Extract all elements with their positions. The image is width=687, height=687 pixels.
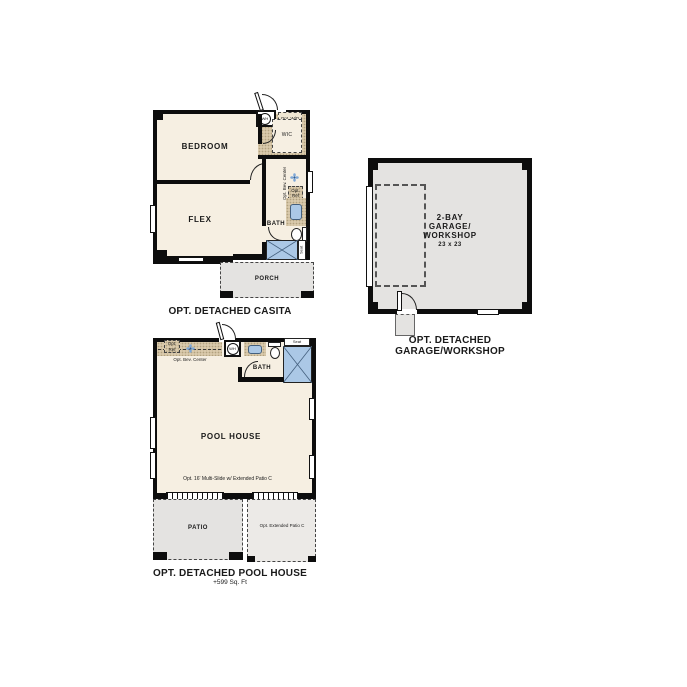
porch-post: [301, 291, 314, 298]
casita-caption-text: OPT. DETACHED CASITA: [168, 306, 291, 318]
casita-caption: OPT. DETACHED CASITA: [130, 306, 330, 318]
multi-slide-label: Opt. 16' Multi-Slide w/ Extended Patio C: [160, 476, 295, 483]
wh-label: WH: [262, 116, 269, 121]
floorplan-canvas: WH Opt. W/D WIC BEDROOM FLEX Opt. Bev. C…: [0, 0, 687, 687]
casita-entry-door-swing: [262, 94, 278, 110]
pool-house-area-text: +599 Sq. Ft: [213, 579, 247, 586]
pool-opt-bev-center-label: Opt. Bev. Center: [162, 356, 218, 363]
patio-text: PATIO: [188, 525, 208, 532]
sink-icon: [290, 204, 302, 220]
fan-icon: [290, 173, 299, 182]
window: [477, 309, 499, 315]
garage-name-line3: WORKSHOP: [405, 231, 495, 240]
wall-corner: [153, 250, 167, 264]
pool-seat-text: Seat: [293, 340, 301, 345]
garage-dimension-text: 23 x 23: [438, 242, 462, 249]
wall-corner: [368, 302, 378, 314]
opt-ref-text: Opt. Ref: [289, 188, 302, 198]
shower-x-icon: [283, 346, 312, 383]
flex-label: FLEX: [150, 215, 250, 225]
garage-name-line1: 2-BAY: [405, 213, 495, 222]
wic-label: WIC: [282, 133, 293, 139]
porch-post: [220, 291, 233, 298]
wall-corner: [368, 158, 378, 170]
garage-caption: OPT. DETACHED GARAGE/WORKSHOP: [355, 340, 545, 352]
wall-segment: [153, 110, 258, 114]
pool-seat-label: Seat: [284, 338, 310, 346]
window: [309, 455, 315, 479]
wall-corner: [522, 158, 532, 170]
wall-segment: [238, 377, 284, 382]
pool-house-label: POOL HOUSE: [181, 432, 281, 442]
casita-seat-label: Seat: [298, 240, 306, 260]
bedroom-text: BEDROOM: [182, 142, 229, 151]
garage-stoop: [395, 314, 415, 336]
wic-room: WIC: [272, 119, 302, 153]
toilet-icon: [270, 347, 280, 359]
garage-name2-text: GARAGE/: [429, 222, 471, 231]
wall-segment: [368, 309, 532, 314]
patio-post: [229, 552, 243, 560]
patio-post: [247, 556, 255, 562]
wall-segment: [157, 180, 250, 184]
window: [178, 257, 204, 262]
window: [150, 452, 156, 479]
opt-ref-box: Opt. Ref: [164, 340, 180, 353]
porch-text: PORCH: [255, 276, 279, 283]
wall-segment: [527, 158, 532, 314]
garage-name-line2: GARAGE/: [405, 222, 495, 231]
porch-label: PORCH: [240, 275, 294, 283]
pool-house-text: POOL HOUSE: [201, 432, 261, 441]
ext-patio-label: Opt. Extended Patio C: [253, 519, 311, 533]
wall-segment: [153, 110, 157, 262]
pool-house-caption: OPT. DETACHED POOL HOUSE: [140, 568, 320, 579]
patio-post: [153, 552, 167, 560]
patio-label: PATIO: [178, 524, 218, 532]
fan-icon: [186, 344, 195, 353]
flex-text: FLEX: [188, 215, 211, 224]
bedroom-label: BEDROOM: [155, 142, 255, 152]
ext-patio-text: Opt. Extended Patio C: [260, 523, 305, 528]
window: [309, 398, 315, 420]
wall-segment: [368, 158, 532, 163]
wall-segment: [262, 159, 266, 226]
pool-entry-door-swing: [222, 324, 236, 339]
pool-house-area: +599 Sq. Ft: [140, 579, 320, 587]
garage-dimension: 23 x 23: [405, 241, 495, 250]
garage-door-window: [366, 186, 373, 287]
garage-caption-text: OPT. DETACHED GARAGE/WORKSHOP: [355, 335, 545, 358]
garage-name3-text: WORKSHOP: [423, 231, 477, 240]
pool-house-caption-text: OPT. DETACHED POOL HOUSE: [153, 568, 307, 580]
casita-seat-text: Seat: [300, 246, 305, 254]
wall-segment: [238, 367, 242, 379]
wall-corner: [153, 110, 163, 120]
wh-circle-icon: WH: [227, 343, 239, 355]
garage-name1-text: 2-BAY: [437, 213, 464, 222]
window: [150, 417, 156, 449]
multi-slide-text: Opt. 16' Multi-Slide w/ Extended Patio C: [183, 477, 272, 483]
wall-segment: [258, 114, 262, 144]
window: [307, 171, 313, 193]
shower-x-icon: [266, 240, 298, 260]
patio-post: [308, 556, 316, 562]
opt-bev-center-text: Opt. Bev. Center: [282, 166, 287, 199]
pool-wh-text: WH: [229, 346, 236, 351]
sink-icon: [248, 345, 262, 354]
pool-opt-ref-text: Opt. Ref: [165, 341, 179, 351]
pool-opt-bev-center-text: Opt. Bev. Center: [173, 357, 206, 362]
wall-corner: [522, 302, 532, 314]
